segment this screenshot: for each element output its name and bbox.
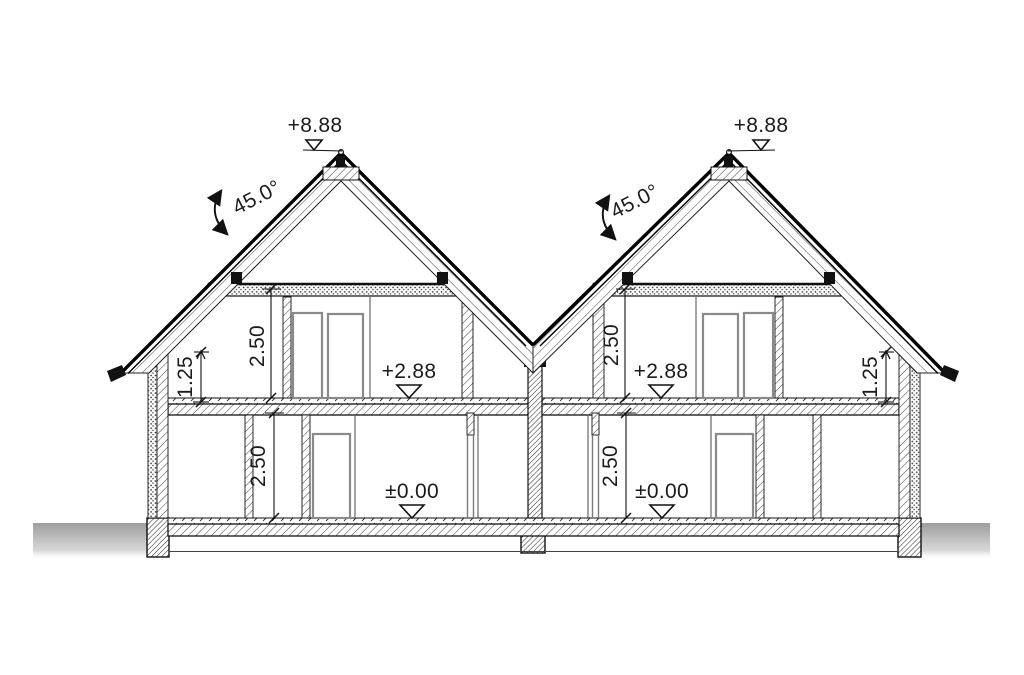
- ridge-level-label-left: +8.88: [288, 114, 343, 138]
- foundation-left: [147, 518, 169, 557]
- attic-ceiling-slabs: [208, 284, 858, 296]
- dim-label-upper-left: 2.50: [246, 325, 270, 367]
- wall-right-masonry: [899, 352, 910, 518]
- gutter-right: [940, 365, 959, 382]
- door-upper-left-2: [328, 314, 363, 398]
- door-ground-left: [313, 434, 350, 518]
- level-marker-ground-left: [400, 505, 424, 518]
- dim-label-lower-left: 2.50: [247, 445, 271, 487]
- dim-label-knee-right: 1.25: [859, 356, 883, 398]
- collar-beam-left: [323, 167, 359, 180]
- ridge-point-right: [727, 150, 732, 155]
- first-floor-level-label-left: +2.88: [382, 360, 437, 384]
- level-marker-first-right: [649, 385, 673, 398]
- wall-left-masonry: [157, 352, 168, 518]
- roof-right-west-slope: [533, 153, 729, 373]
- lintel-wall-right: [592, 413, 599, 435]
- dim-label-upper-right: 2.50: [600, 324, 624, 366]
- door-upper-left-1: [293, 313, 322, 398]
- ridge-marker-left: [303, 140, 342, 151]
- wall-left-insulation: [148, 352, 157, 518]
- wall-right-insulation: [910, 352, 920, 518]
- ground-level-label-right: ±0.00: [635, 480, 689, 504]
- first-floor-level-label-right: +2.88: [634, 360, 689, 384]
- ridge-beam-right: [724, 156, 733, 167]
- angle-arrow-left: [215, 191, 227, 234]
- door-upper-right-1: [703, 314, 738, 398]
- level-marker-first-left: [397, 385, 421, 398]
- ground-floor-slab: [168, 518, 899, 536]
- dim-label-lower-right: 2.50: [599, 445, 623, 487]
- ridge-point-left: [339, 150, 344, 155]
- blueprint-canvas: +8.88 +8.88 45.0° 45.0° 2.50 2.50 1.25 1…: [0, 0, 1024, 675]
- level-marker-ground-right: [650, 505, 674, 518]
- ground-level-label-left: ±0.00: [385, 480, 439, 504]
- foundation-right: [898, 518, 921, 557]
- dim-label-knee-left: 1.25: [174, 356, 198, 398]
- ridge-marker-right: [728, 140, 775, 151]
- gutter-left: [107, 365, 126, 382]
- lintel-wall-left: [467, 413, 474, 435]
- door-ground-right: [716, 434, 753, 518]
- ridge-beam-left: [336, 156, 345, 167]
- roofs: [107, 150, 959, 382]
- door-upper-right-2: [744, 313, 773, 398]
- foundation-center: [521, 534, 545, 553]
- ground-strip-left: [33, 523, 147, 560]
- party-wall: [524, 355, 546, 518]
- purlins: [231, 272, 835, 284]
- ground-strip-right: [921, 523, 990, 560]
- ridge-level-label-right: +8.88: [734, 114, 789, 138]
- section-drawing: [0, 0, 1024, 675]
- collar-beam-right: [711, 167, 747, 180]
